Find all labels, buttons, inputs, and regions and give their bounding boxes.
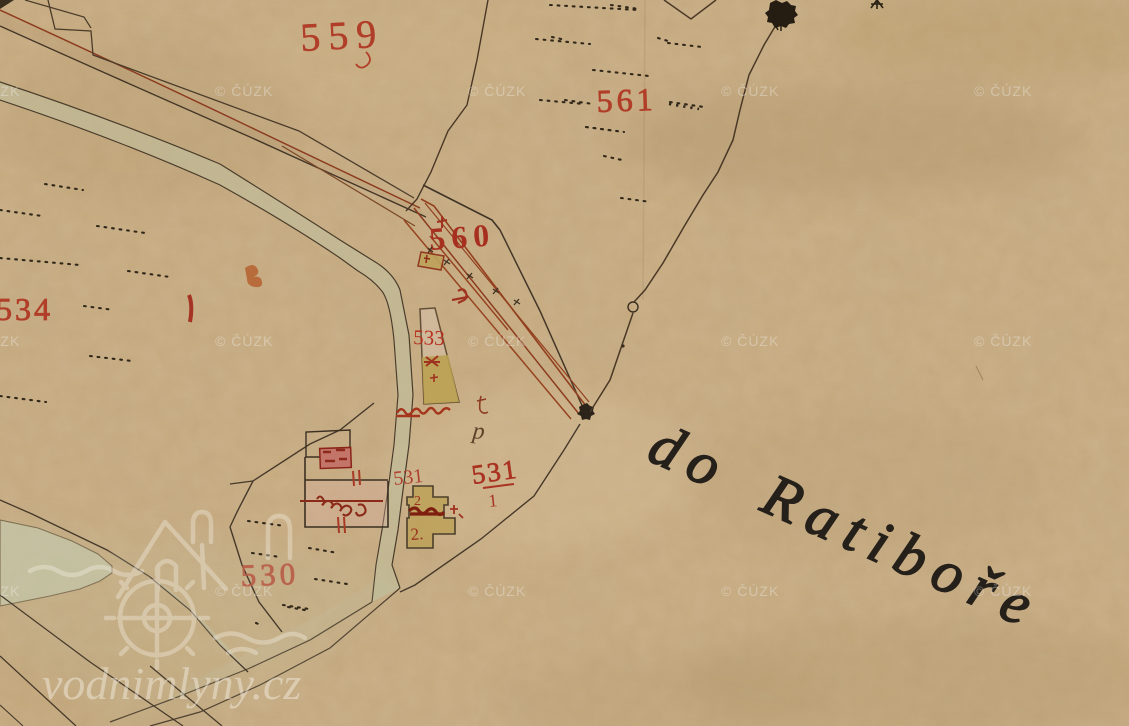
svg-text:561: 561 [596,81,657,119]
svg-text:2.: 2. [410,524,424,544]
svg-text:531: 531 [392,465,424,490]
svg-text:534: 534 [0,291,53,327]
svg-text:© ČÚZK: © ČÚZK [0,583,20,599]
svg-text:© ČÚZK: © ČÚZK [0,333,20,349]
svg-text:559: 559 [299,11,385,60]
svg-text:© ČÚZK: © ČÚZK [721,333,779,349]
svg-text:© ČÚZK: © ČÚZK [215,83,273,99]
svg-text:© ČÚZK: © ČÚZK [974,333,1032,349]
svg-text:© ČÚZK: © ČÚZK [0,83,20,99]
svg-text:© ČÚZK: © ČÚZK [468,83,526,99]
svg-text:vodnimlyny.cz: vodnimlyny.cz [42,658,301,709]
svg-text:533: 533 [413,325,445,350]
svg-text:© ČÚZK: © ČÚZK [721,83,779,99]
svg-text:2: 2 [414,494,421,509]
svg-text:© ČÚZK: © ČÚZK [974,583,1032,599]
svg-text:© ČÚZK: © ČÚZK [468,583,526,599]
svg-text:© ČÚZK: © ČÚZK [721,583,779,599]
svg-text:© ČÚZK: © ČÚZK [468,333,526,349]
svg-text:© ČÚZK: © ČÚZK [974,83,1032,99]
svg-text:© ČÚZK: © ČÚZK [215,333,273,349]
